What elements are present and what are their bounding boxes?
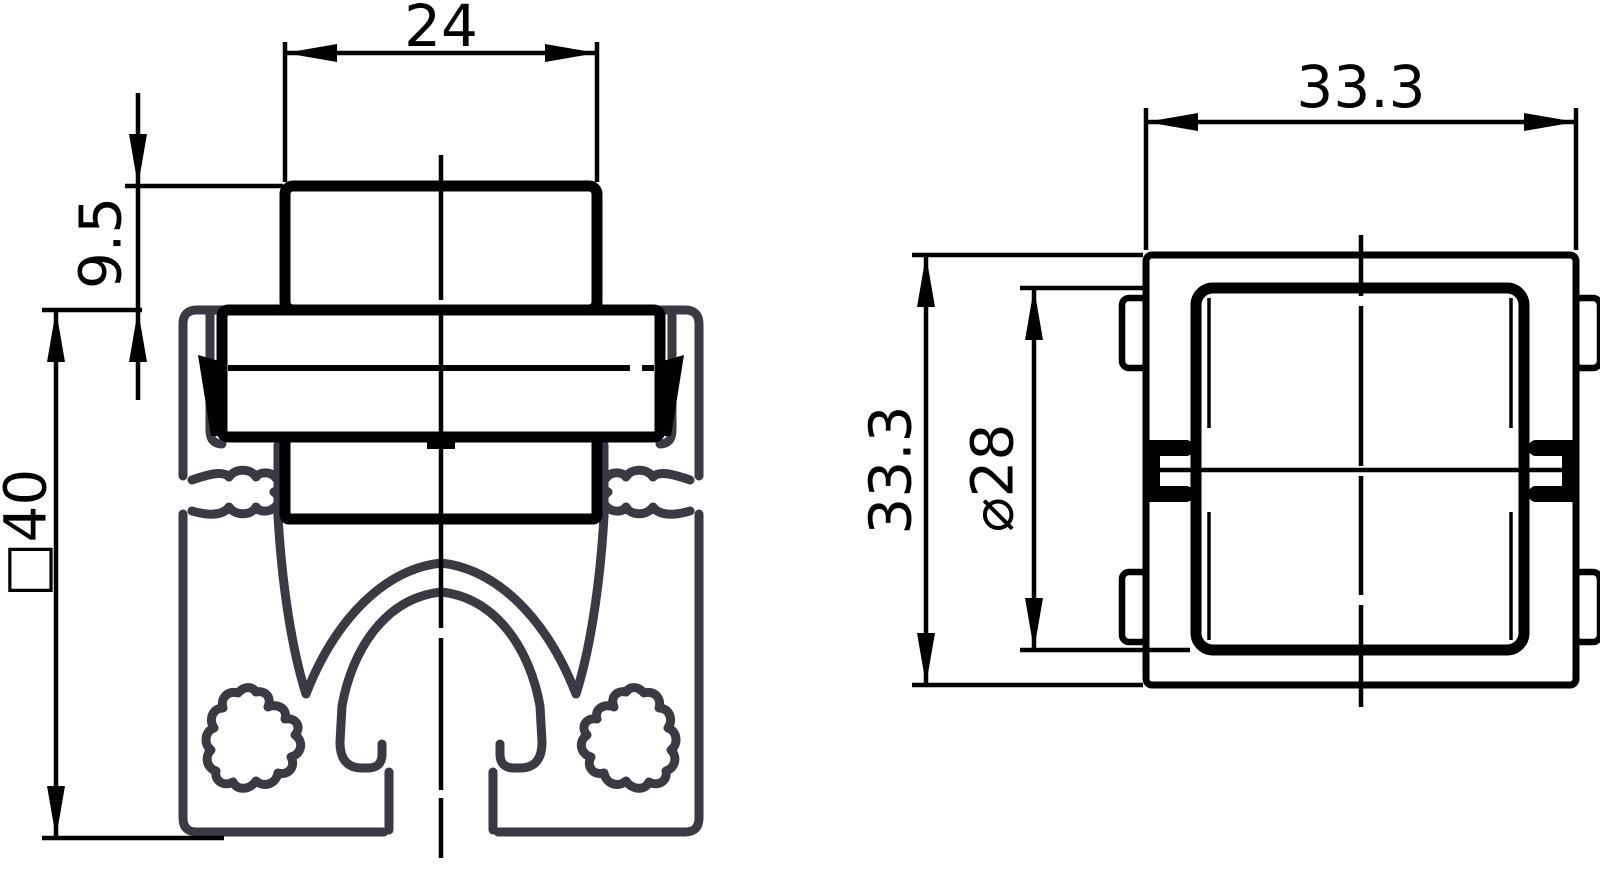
- dim-arrow: [1146, 113, 1198, 131]
- dim-arrow: [285, 44, 337, 62]
- dim-arrow: [1524, 113, 1576, 131]
- profile-flower-cutout: [206, 688, 301, 789]
- dim-arrow: [1025, 598, 1043, 650]
- dim-label-diameter-28: ⌀28: [958, 424, 1026, 533]
- dim-arrow: [129, 134, 147, 186]
- retaining-wedge-right: [656, 355, 684, 436]
- technical-drawing-page: 24 9.5 □40: [0, 0, 1600, 874]
- dim-arrow: [47, 786, 65, 838]
- dim-label-square40: □40: [0, 469, 59, 598]
- dim-label-33.3-width: 33.3: [1296, 53, 1425, 121]
- profile-tslot-bone: [603, 470, 690, 514]
- dim-arrow: [917, 633, 935, 685]
- front-view: 24 9.5 □40: [0, 0, 699, 858]
- dim-label-33.3-height: 33.3: [856, 405, 924, 534]
- clip-tip: [1528, 440, 1544, 456]
- clip-tip: [1178, 440, 1194, 456]
- dim-arrow: [129, 310, 147, 362]
- retaining-wedge-left: [198, 355, 226, 436]
- technical-drawing: 24 9.5 □40: [0, 0, 1600, 874]
- dim-label-9.5: 9.5: [66, 197, 134, 289]
- clip-tip: [1528, 486, 1544, 502]
- dim-arrow: [917, 255, 935, 307]
- dim-33.3-top-lines: [1146, 108, 1576, 250]
- profile-flower-cutout: [581, 688, 676, 789]
- dim-arrow: [1025, 288, 1043, 340]
- dim-33.3-left-lines: [912, 255, 1143, 685]
- side-view: 33.3 33.3 ⌀28: [856, 53, 1600, 707]
- profile-tslot-bone: [192, 470, 279, 514]
- dim-arrow: [47, 310, 65, 362]
- dim-arrow: [545, 44, 597, 62]
- profile-lower-arch-hook: [441, 592, 542, 768]
- clip-tip: [1178, 486, 1194, 502]
- dim-sq40-lines: [42, 310, 224, 838]
- center-nub: [427, 437, 455, 449]
- profile-lower-arch-hook: [340, 592, 441, 768]
- dim-label-24: 24: [404, 0, 478, 60]
